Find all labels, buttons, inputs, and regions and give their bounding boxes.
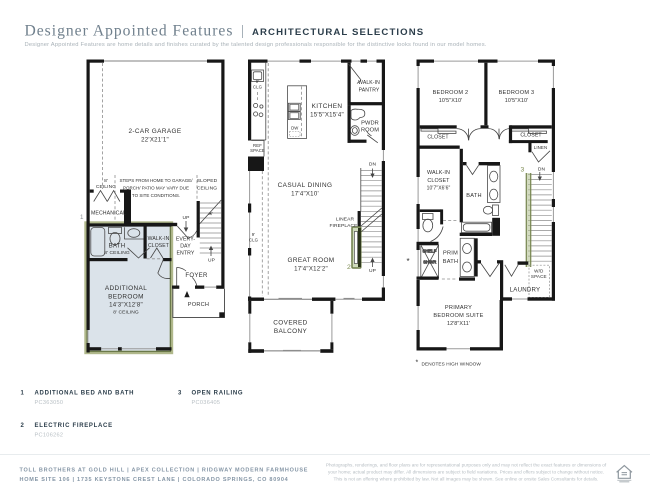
svg-text:UP: UP xyxy=(208,258,215,264)
svg-text:KITCHEN: KITCHEN xyxy=(312,103,343,110)
svg-text:CLG: CLG xyxy=(249,238,259,243)
svg-text:OPEN RAILING: OPEN RAILING xyxy=(192,391,244,397)
svg-text:CLOSET: CLOSET xyxy=(520,133,542,139)
svg-text:8' CEILING: 8' CEILING xyxy=(104,250,130,256)
svg-text:10'5"X10': 10'5"X10' xyxy=(505,98,528,104)
svg-text:22'X21'1": 22'X21'1" xyxy=(141,137,169,144)
svg-text:UP: UP xyxy=(183,215,190,221)
svg-text:BATH: BATH xyxy=(109,243,126,250)
svg-text:CLOSET: CLOSET xyxy=(427,135,449,141)
svg-text:LAUNDRY: LAUNDRY xyxy=(510,286,541,293)
svg-text:UP: UP xyxy=(369,268,376,274)
svg-text:FOYER: FOYER xyxy=(185,272,208,279)
svg-text:PC106262: PC106262 xyxy=(35,433,64,439)
svg-text:9': 9' xyxy=(252,232,255,237)
svg-text:ADDITIONAL BED AND BATH: ADDITIONAL BED AND BATH xyxy=(35,391,135,397)
svg-text:*: * xyxy=(416,360,419,367)
svg-text:*: * xyxy=(407,257,410,266)
svg-text:DN: DN xyxy=(369,162,377,168)
svg-text:ELECTRIC FIREPLACE: ELECTRIC FIREPLACE xyxy=(35,423,113,429)
svg-text:LINEN: LINEN xyxy=(534,145,547,150)
svg-text:CEILING: CEILING xyxy=(96,184,116,190)
svg-text:2: 2 xyxy=(347,264,351,271)
svg-text:10'5"X10': 10'5"X10' xyxy=(439,98,462,104)
svg-text:MECHANICAL: MECHANICAL xyxy=(91,211,126,217)
svg-text:BATH: BATH xyxy=(443,259,459,265)
svg-text:SPACE: SPACE xyxy=(531,274,547,279)
svg-text:15'5"X15'4": 15'5"X15'4" xyxy=(310,112,344,119)
svg-text:This is not an offering where: This is not an offering where prohibited… xyxy=(334,477,599,482)
svg-text:PORCH: PORCH xyxy=(188,302,209,308)
svg-text:DN: DN xyxy=(538,167,546,173)
svg-text:ADDITIONAL: ADDITIONAL xyxy=(105,285,147,292)
svg-text:3: 3 xyxy=(178,391,182,397)
svg-text:EVERY-: EVERY- xyxy=(176,237,196,243)
svg-text:HOME SITE 106 | 1735 KEYSTONE: HOME SITE 106 | 1735 KEYSTONE CREST LANE… xyxy=(20,477,289,483)
svg-text:3: 3 xyxy=(521,167,525,174)
svg-text:W/D: W/D xyxy=(534,269,544,274)
svg-text:17'4"X12'2": 17'4"X12'2" xyxy=(294,266,328,273)
svg-text:9': 9' xyxy=(256,79,259,84)
svg-text:BEDROOM 3: BEDROOM 3 xyxy=(499,90,535,96)
svg-text:2-CAR GARAGE: 2-CAR GARAGE xyxy=(128,128,181,135)
svg-text:Designer Appointed Features: Designer Appointed Features xyxy=(25,23,234,40)
svg-text:8': 8' xyxy=(104,178,108,184)
svg-text:LINEAR: LINEAR xyxy=(336,217,355,223)
svg-text:PANTRY: PANTRY xyxy=(359,88,380,94)
svg-text:PORCH/ PATIO MAY VARY DUE: PORCH/ PATIO MAY VARY DUE xyxy=(123,186,189,191)
svg-text:CLG: CLG xyxy=(253,85,263,90)
svg-text:PWDR: PWDR xyxy=(361,121,379,127)
svg-text:BATH: BATH xyxy=(466,193,482,199)
svg-text:ARCHITECTURAL SELECTIONS: ARCHITECTURAL SELECTIONS xyxy=(252,27,424,38)
svg-text:FIREPLACE: FIREPLACE xyxy=(329,223,358,229)
svg-text:ENTRY: ENTRY xyxy=(177,251,195,257)
svg-text:ROOM: ROOM xyxy=(361,128,379,134)
svg-text:PC363050: PC363050 xyxy=(35,400,64,406)
svg-text:CASUAL DINING: CASUAL DINING xyxy=(278,182,333,189)
svg-text:8' CEILING: 8' CEILING xyxy=(113,310,139,316)
svg-text:CLOSET: CLOSET xyxy=(427,178,450,184)
svg-text:2: 2 xyxy=(21,423,25,429)
svg-text:17'4"X10': 17'4"X10' xyxy=(291,191,319,198)
svg-text:PRIMARY: PRIMARY xyxy=(445,305,472,311)
svg-text:14'3"X12'8": 14'3"X12'8" xyxy=(109,302,143,309)
svg-text:12'8"X11': 12'8"X11' xyxy=(447,321,470,327)
svg-text:DAY: DAY xyxy=(180,244,191,250)
svg-text:TO SITE CONDITIONS.: TO SITE CONDITIONS. xyxy=(132,193,180,198)
svg-text:COVERED: COVERED xyxy=(273,320,307,327)
svg-text:Photographs, renderings, and f: Photographs, renderings, and floor plans… xyxy=(326,463,607,468)
svg-text:1: 1 xyxy=(21,391,25,397)
svg-text:BEDROOM SUITE: BEDROOM SUITE xyxy=(433,313,483,319)
svg-text:1: 1 xyxy=(80,214,84,221)
svg-text:DENOTES HIGH WINDOW: DENOTES HIGH WINDOW xyxy=(422,362,482,367)
svg-text:BEDROOM 2: BEDROOM 2 xyxy=(433,90,469,96)
svg-text:DW: DW xyxy=(291,126,299,131)
svg-text:WALK-IN: WALK-IN xyxy=(358,80,380,86)
svg-text:STEPS FROM HOME TO GARAGE/: STEPS FROM HOME TO GARAGE/ xyxy=(119,178,193,183)
svg-text:CEILING: CEILING xyxy=(197,186,217,192)
svg-text:10'7"X6'6": 10'7"X6'6" xyxy=(427,186,451,192)
svg-text:PRIM: PRIM xyxy=(443,251,458,257)
svg-text:CLOSET: CLOSET xyxy=(148,243,169,249)
svg-text:WALK-IN: WALK-IN xyxy=(427,170,450,176)
svg-text:PC036405: PC036405 xyxy=(192,400,221,406)
svg-text:TOLL BROTHERS AT GOLD HILL | A: TOLL BROTHERS AT GOLD HILL | APEX COLLEC… xyxy=(20,468,309,474)
svg-text:BALCONY: BALCONY xyxy=(274,328,308,335)
svg-text:GREAT ROOM: GREAT ROOM xyxy=(287,257,334,264)
svg-text:WALK-IN: WALK-IN xyxy=(148,236,170,242)
svg-text:SHELF: SHELF xyxy=(423,249,437,254)
svg-text:SHWR: SHWR xyxy=(423,260,436,265)
svg-text:SLOPED: SLOPED xyxy=(197,178,218,184)
svg-text:your home; actual product may: your home; actual product may differ. Al… xyxy=(328,470,604,475)
svg-text:BEDROOM: BEDROOM xyxy=(108,294,144,301)
svg-text:Designer Appointed Features ar: Designer Appointed Features are home det… xyxy=(25,42,487,48)
svg-text:SPACE: SPACE xyxy=(250,148,265,153)
svg-text:|: | xyxy=(241,23,244,39)
